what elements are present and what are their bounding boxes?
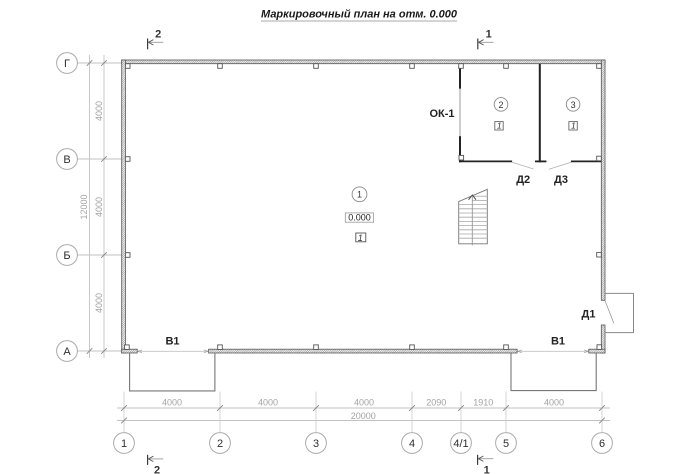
svg-text:4/1: 4/1 <box>453 438 468 450</box>
svg-text:1: 1 <box>486 29 492 41</box>
svg-text:0.000: 0.000 <box>348 213 371 223</box>
svg-text:Б: Б <box>63 250 70 262</box>
svg-text:20000: 20000 <box>351 411 376 421</box>
svg-text:Д2: Д2 <box>516 174 530 186</box>
svg-text:1: 1 <box>497 121 502 131</box>
svg-text:В1: В1 <box>165 336 179 348</box>
svg-text:1: 1 <box>484 465 490 474</box>
svg-text:4: 4 <box>409 438 415 450</box>
svg-text:2: 2 <box>498 100 503 110</box>
svg-text:4000: 4000 <box>354 398 374 408</box>
svg-text:Д3: Д3 <box>554 174 568 186</box>
svg-text:2: 2 <box>155 29 161 41</box>
svg-text:4000: 4000 <box>94 293 104 313</box>
svg-text:А: А <box>63 346 71 358</box>
svg-text:ОК-1: ОК-1 <box>429 108 454 120</box>
svg-text:6: 6 <box>599 438 605 450</box>
svg-text:1: 1 <box>357 190 362 200</box>
svg-text:4000: 4000 <box>94 197 104 217</box>
svg-text:1910: 1910 <box>473 398 493 408</box>
svg-text:1: 1 <box>571 121 576 131</box>
svg-text:1: 1 <box>358 233 363 243</box>
svg-text:4000: 4000 <box>258 398 278 408</box>
svg-text:4000: 4000 <box>162 398 182 408</box>
svg-text:4000: 4000 <box>544 398 564 408</box>
svg-text:Г: Г <box>64 58 70 70</box>
svg-text:1: 1 <box>121 438 127 450</box>
svg-text:2090: 2090 <box>426 398 446 408</box>
svg-text:3: 3 <box>571 100 576 110</box>
svg-text:В1: В1 <box>551 336 565 348</box>
svg-text:4000: 4000 <box>94 101 104 121</box>
svg-text:2: 2 <box>154 465 160 474</box>
svg-text:2: 2 <box>217 438 223 450</box>
svg-text:3: 3 <box>313 438 319 450</box>
svg-text:12000: 12000 <box>79 194 89 219</box>
svg-text:В: В <box>63 154 70 166</box>
svg-text:Д1: Д1 <box>582 309 596 321</box>
svg-text:Маркировочный план на отм. 0.0: Маркировочный план на отм. 0.000 <box>261 9 458 21</box>
svg-text:5: 5 <box>503 438 509 450</box>
